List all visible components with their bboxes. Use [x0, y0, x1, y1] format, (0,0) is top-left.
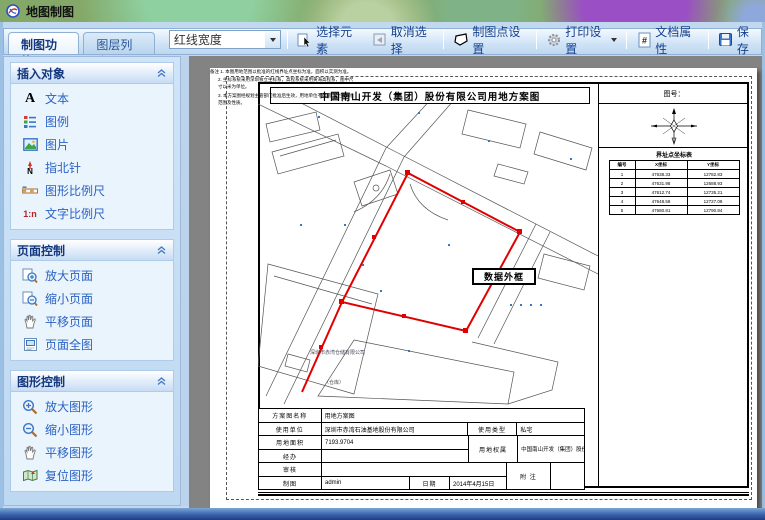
form-value-land-owner: 中国南山开发（集团）股份有限公司 [517, 436, 584, 462]
tab-map-functions[interactable]: 制图功能 [8, 32, 79, 54]
svg-text:N: N [27, 167, 33, 175]
select-element-icon [297, 32, 313, 48]
toolbar: 红线宽度 选择元素 取消选择 [169, 27, 761, 54]
sidebar-item-label: 平移图形 [45, 444, 93, 461]
page-full-extent-icon [22, 337, 38, 353]
group-insert-objects: 插入对象 A 文本 图例 [10, 62, 174, 230]
text-icon: A [22, 91, 38, 107]
window-bottom-border [0, 508, 765, 520]
task-pane: 插入对象 A 文本 图例 [3, 56, 181, 506]
sidebar-item-text[interactable]: A 文本 [11, 87, 173, 110]
group-title: 页面控制 [17, 242, 156, 259]
picture-icon [22, 137, 38, 153]
coord-cell: 47680.81 [635, 206, 687, 215]
coord-cell: 12790.84 [687, 206, 739, 215]
tab-toolbar-strip: 制图功能 图层列表 红线宽度 选择元素 取消选择 [3, 28, 762, 55]
form-value-use-type: 私宅 [516, 423, 584, 435]
group-header-insert-objects[interactable]: 插入对象 [11, 63, 173, 84]
map-linework [258, 104, 598, 404]
compass-box[interactable] [599, 104, 749, 148]
sidebar-item-label: 缩小页面 [45, 290, 93, 307]
redline-width-combo[interactable]: 红线宽度 [169, 30, 281, 49]
sidebar-item-label: 缩小图形 [45, 421, 93, 438]
sidebar-item-graphic-scalebar[interactable]: 图形比例尺 [11, 179, 173, 202]
coord-cell: 5 [609, 206, 635, 215]
coord-col-header: 编号 [609, 161, 635, 170]
window-title: 地图制图 [26, 3, 74, 20]
coord-cell: 12735.21 [687, 188, 739, 197]
form-label: 使用单位 [259, 423, 321, 435]
coord-table-row: 247631.9812688.93 [609, 179, 739, 188]
print-settings-button[interactable]: 打印设置 [543, 21, 620, 59]
redline-width-dropdown-button[interactable] [265, 31, 280, 48]
form-value-drafter: admin [321, 477, 409, 489]
zoom-out-page-icon [22, 291, 38, 307]
tab-layer-list[interactable]: 图层列表 [83, 32, 154, 54]
select-element-label: 选择元素 [316, 23, 360, 57]
form-value-date: 2014年4月15日 [449, 477, 506, 489]
parcel-owner-label: 深圳市赤湾仓储有限公司 [310, 349, 365, 356]
group-header-graphic-control[interactable]: 图形控制 [11, 371, 173, 392]
save-disk-icon [718, 32, 734, 48]
collapse-chevron-icon[interactable] [156, 68, 167, 78]
cancel-select-label: 取消选择 [391, 23, 435, 57]
document-properties-icon: # [636, 32, 652, 48]
group-graphic-control: 图形控制 放大图形 [10, 370, 174, 492]
chevron-down-icon [270, 38, 276, 42]
svg-text:#: # [642, 35, 647, 45]
sidebar-item-north-arrow[interactable]: N 指北针 [11, 156, 173, 179]
sidebar-item-pan-page[interactable]: 平移页面 [11, 310, 173, 333]
form-value-reviewer [321, 463, 506, 476]
group-title: 图形控制 [17, 373, 156, 390]
north-compass-icon [639, 106, 709, 146]
sidebar-item-label: 文本 [45, 90, 69, 107]
group-page-control: 页面控制 放大页面 [10, 239, 174, 361]
form-value-land-area: 7193.9704 [321, 436, 468, 449]
toolbar-separator [536, 31, 537, 49]
sidebar-item-label: 图例 [45, 113, 69, 130]
save-button[interactable]: 保存 [715, 21, 761, 59]
sheet-title[interactable]: 中国南山开发（集团）股份有限公司用地方案图 [270, 87, 590, 104]
sidebar-item-zoom-in-graphic[interactable]: 放大图形 [11, 395, 173, 418]
data-frame-selected-label[interactable]: 数据外框 [472, 268, 536, 285]
window-titlebar: 地图制图 [0, 0, 765, 22]
sidebar-item-page-full-extent[interactable]: 页面全图 [11, 333, 173, 356]
legend-icon [22, 114, 38, 130]
form-value-user-unit: 深圳市赤湾石油基地股份有限公司 [321, 423, 467, 435]
toolbar-separator [626, 31, 627, 49]
group-header-page-control[interactable]: 页面控制 [11, 240, 173, 261]
toolbar-separator [708, 31, 709, 49]
sidebar-item-label: 图形比例尺 [45, 182, 105, 199]
coord-cell: 47638.33 [635, 170, 687, 179]
cancel-select-icon [372, 32, 388, 48]
coord-table-row: 347612.7412735.21 [609, 188, 739, 197]
coord-table-row: 447648.5812727.08 [609, 197, 739, 206]
coord-cell: 12782.83 [687, 170, 739, 179]
app-logo-icon [5, 3, 21, 19]
save-label: 保存 [737, 23, 758, 57]
titleblock-form: 方案图名称 用地方案图 使用单位 深圳市赤湾石油基地股份有限公司 使用类型 私宅… [258, 408, 585, 490]
pane-splitter[interactable] [181, 56, 189, 506]
sidebar-item-pan-graphic[interactable]: 平移图形 [11, 441, 173, 464]
sidebar-item-text-scale[interactable]: 1:n 文字比例尺 [11, 202, 173, 225]
coord-cell: 2 [609, 179, 635, 188]
sidebar-item-label: 放大页面 [45, 267, 93, 284]
chevron-down-icon[interactable] [611, 38, 617, 42]
sidebar-item-label: 页面全图 [45, 336, 93, 353]
redline-width-value: 红线宽度 [170, 31, 265, 48]
form-label: 使用类型 [467, 423, 517, 435]
sidebar-item-legend[interactable]: 图例 [11, 110, 173, 133]
sidebar-item-label: 平移页面 [45, 313, 93, 330]
coord-cell: 12727.08 [687, 197, 739, 206]
sidebar-item-zoom-out-page[interactable]: 缩小页面 [11, 287, 173, 310]
gear-icon [546, 32, 562, 48]
collapse-chevron-icon[interactable] [156, 245, 167, 255]
coord-cell: 47612.74 [635, 188, 687, 197]
note-line: 备注 1. 本图用地范围以批准的红线界址点坐标为准，面积以实测为准。 [210, 68, 356, 75]
doc-properties-label: 文档属性 [655, 23, 699, 57]
toolbar-separator [287, 31, 288, 49]
north-arrow-icon: N [22, 160, 38, 176]
sidebar-item-zoom-in-page[interactable]: 放大页面 [11, 264, 173, 287]
text-scale-icon: 1:n [22, 206, 38, 222]
polygon-icon [453, 32, 469, 48]
scalebar-icon [22, 183, 38, 199]
coord-cell: 47631.98 [635, 179, 687, 188]
form-label: 经办 [259, 450, 321, 462]
form-label: 方案图名称 [259, 409, 321, 422]
form-label: 日期 [409, 477, 449, 489]
coord-cell: 3 [609, 188, 635, 197]
form-label: 审核 [259, 463, 321, 476]
hand-icon [22, 314, 38, 330]
form-label: 附 注 [506, 463, 550, 489]
collapse-chevron-icon[interactable] [156, 376, 167, 386]
toolbar-separator [443, 31, 444, 49]
form-label: 制图 [259, 477, 321, 489]
zoom-in-page-icon [22, 268, 38, 284]
cancel-select-button[interactable]: 取消选择 [369, 21, 438, 59]
coord-table-title: 界址点坐标表 [599, 150, 749, 159]
coord-cell: 12688.93 [687, 179, 739, 188]
sidebar-item-picture[interactable]: 图片 [11, 133, 173, 156]
coord-cell: 4 [609, 197, 635, 206]
select-element-button[interactable]: 选择元素 [294, 21, 363, 59]
sidebar-item-zoom-out-graphic[interactable]: 缩小图形 [11, 418, 173, 441]
group-title: 插入对象 [17, 65, 156, 82]
boundary-vertex-markers [319, 170, 522, 349]
coord-cell: 1 [609, 170, 635, 179]
map-drawing[interactable]: 深圳市赤湾仓储有限公司 （仓库） [258, 104, 598, 408]
coord-table-row: 547680.8112790.84 [609, 206, 739, 215]
sidebar-item-reset-graphic[interactable]: 复位图形 [11, 464, 173, 487]
magnifier-minus-icon [22, 422, 38, 438]
form-value-attachment [550, 463, 584, 489]
coord-table-row: 147638.3312782.83 [609, 170, 739, 179]
layout-page[interactable]: 中国南山开发（集团）股份有限公司用地方案图 图号： 界址点坐标表 编号 X坐标 … [210, 68, 757, 512]
print-settings-label: 打印设置 [565, 23, 608, 57]
form-value-handler [321, 450, 468, 462]
coord-col-header: Y坐标 [687, 161, 739, 170]
sidebar-item-label: 复位图形 [45, 467, 93, 484]
doc-properties-button[interactable]: # 文档属性 [633, 21, 702, 59]
plot-point-settings-button[interactable]: 制图点设置 [450, 21, 530, 59]
sidebar-item-label: 文字比例尺 [45, 205, 105, 222]
coord-cell: 47648.58 [635, 197, 687, 206]
sidebar-item-label: 图片 [45, 136, 69, 153]
coord-table: 编号 X坐标 Y坐标 147638.3312782.83247631.98126… [599, 160, 749, 215]
sidebar-item-label: 指北针 [45, 159, 81, 176]
plot-point-settings-label: 制图点设置 [472, 23, 527, 57]
hand-icon [22, 445, 38, 461]
form-label: 用地面积 [259, 436, 321, 449]
sheet-bottom-doubleline [258, 492, 749, 496]
map-annotation-marks [300, 112, 572, 352]
figure-number-label: 图号： [599, 84, 749, 104]
form-value-plan-name: 用地方案图 [321, 409, 584, 422]
magnifier-plus-icon [22, 399, 38, 415]
form-label: 用地权属 [468, 436, 517, 462]
coord-col-header: X坐标 [635, 161, 687, 170]
reset-graphic-icon [22, 468, 38, 484]
sidebar-item-label: 放大图形 [45, 398, 93, 415]
parcel-use-label: （仓库） [324, 379, 344, 386]
